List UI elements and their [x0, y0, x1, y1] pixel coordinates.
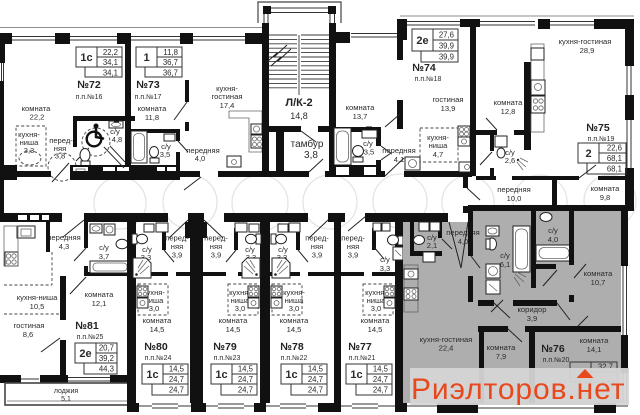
svg-text:4,7: 4,7 — [433, 150, 444, 159]
svg-text:24,7: 24,7 — [373, 386, 388, 395]
svg-text:п.п.№25: п.п.№25 — [77, 334, 104, 341]
svg-text:комната: комната — [580, 336, 609, 345]
svg-text:3,5: 3,5 — [364, 148, 375, 157]
svg-text:комната: комната — [487, 343, 516, 352]
svg-text:68,1: 68,1 — [607, 154, 622, 163]
svg-text:24,7: 24,7 — [373, 375, 388, 384]
svg-text:п.п.№18: п.п.№18 — [415, 76, 442, 83]
svg-text:комната: комната — [494, 98, 523, 107]
svg-text:№73: №73 — [136, 79, 160, 91]
svg-text:лоджия: лоджия — [54, 388, 79, 395]
svg-text:3,0: 3,0 — [371, 304, 382, 313]
svg-text:24,7: 24,7 — [308, 375, 323, 384]
svg-text:4,0: 4,0 — [458, 237, 469, 246]
svg-text:22,4: 22,4 — [439, 344, 454, 353]
svg-text:№76: №76 — [541, 343, 565, 355]
svg-text:39,2: 39,2 — [99, 354, 114, 363]
svg-text:22,2: 22,2 — [103, 48, 118, 57]
svg-text:п.п.№21: п.п.№21 — [349, 355, 376, 362]
svg-text:комната: комната — [584, 269, 613, 278]
svg-text:№81: №81 — [75, 320, 99, 332]
svg-text:гостиная: гостиная — [14, 321, 45, 330]
svg-text:№80: №80 — [144, 341, 168, 353]
svg-text:3,3: 3,3 — [380, 264, 391, 273]
svg-text:комната: комната — [361, 316, 390, 325]
svg-text:Л/К-2: Л/К-2 — [285, 97, 312, 109]
svg-text:44,3: 44,3 — [99, 365, 114, 374]
svg-text:10,0: 10,0 — [507, 194, 522, 203]
svg-text:12,8: 12,8 — [501, 107, 516, 116]
svg-text:1с: 1с — [80, 52, 92, 64]
svg-text:4,0: 4,0 — [195, 154, 206, 163]
svg-text:п.п.№23: п.п.№23 — [214, 355, 241, 362]
svg-text:4,0: 4,0 — [548, 235, 559, 244]
svg-text:14,5: 14,5 — [169, 365, 185, 374]
svg-text:№78: №78 — [280, 341, 304, 353]
svg-text:комната: комната — [143, 316, 172, 325]
svg-text:1: 1 — [143, 52, 149, 64]
svg-text:передняя: передняя — [382, 146, 415, 155]
svg-text:2е: 2е — [416, 35, 428, 47]
svg-text:1с: 1с — [285, 369, 297, 381]
svg-text:комната: комната — [591, 184, 620, 193]
svg-text:тамбур: тамбур — [291, 138, 324, 150]
svg-text:3,3: 3,3 — [24, 146, 35, 155]
svg-text:13,7: 13,7 — [353, 112, 368, 121]
svg-text:3,9: 3,9 — [527, 314, 538, 323]
svg-text:14,1: 14,1 — [587, 345, 602, 354]
svg-text:17,4: 17,4 — [220, 101, 235, 110]
svg-text:14,5: 14,5 — [373, 365, 389, 374]
svg-text:1с: 1с — [215, 369, 227, 381]
svg-text:№79: №79 — [213, 341, 237, 353]
svg-text:7,9: 7,9 — [496, 352, 507, 361]
svg-text:комната: комната — [85, 290, 114, 299]
svg-text:3,9: 3,9 — [348, 251, 359, 260]
svg-text:гостиная: гостиная — [212, 92, 243, 101]
svg-text:3,0: 3,0 — [235, 304, 246, 313]
svg-text:1с: 1с — [350, 369, 362, 381]
svg-text:39,9: 39,9 — [439, 42, 454, 51]
svg-text:27,6: 27,6 — [439, 31, 454, 40]
svg-text:п.п.№20: п.п.№20 — [543, 357, 570, 364]
svg-text:22,6: 22,6 — [607, 144, 622, 153]
svg-text:34,1: 34,1 — [103, 69, 118, 78]
svg-text:Риэлторов.нет: Риэлторов.нет — [411, 373, 625, 406]
svg-text:28,9: 28,9 — [580, 46, 595, 55]
svg-text:с/у: с/у — [99, 243, 109, 252]
svg-text:4,3: 4,3 — [59, 242, 70, 251]
svg-text:№74: №74 — [412, 62, 436, 74]
svg-text:11,8: 11,8 — [145, 113, 159, 122]
svg-text:11,8: 11,8 — [163, 48, 178, 57]
svg-text:п.п.№16: п.п.№16 — [76, 94, 103, 101]
svg-text:24,7: 24,7 — [169, 375, 184, 384]
svg-text:24,7: 24,7 — [169, 386, 184, 395]
svg-text:8,6: 8,6 — [23, 330, 34, 339]
svg-text:22,2: 22,2 — [30, 113, 45, 122]
svg-text:комната: комната — [138, 104, 167, 113]
svg-text:коридор: коридор — [518, 305, 547, 314]
svg-text:14,5: 14,5 — [308, 365, 324, 374]
svg-text:3,9: 3,9 — [172, 251, 183, 260]
svg-text:3,5: 3,5 — [160, 150, 171, 159]
svg-text:3,9: 3,9 — [312, 251, 323, 260]
svg-text:кухня-гостиная: кухня-гостиная — [559, 37, 612, 46]
svg-text:14,8: 14,8 — [290, 111, 308, 121]
svg-text:5,1: 5,1 — [61, 396, 71, 403]
svg-text:с/у: с/у — [380, 255, 390, 264]
svg-text:10,7: 10,7 — [591, 278, 606, 287]
svg-text:4,8: 4,8 — [112, 135, 123, 144]
svg-text:36,7: 36,7 — [163, 69, 178, 78]
svg-text:1с: 1с — [146, 369, 158, 381]
svg-text:3,9: 3,9 — [211, 251, 222, 260]
svg-text:2,1: 2,1 — [427, 241, 438, 250]
svg-text:13,9: 13,9 — [441, 104, 456, 113]
svg-text:3,8: 3,8 — [304, 150, 318, 161]
svg-text:кухня-ниша: кухня-ниша — [17, 293, 58, 302]
svg-text:39,9: 39,9 — [439, 53, 454, 62]
svg-text:комната: комната — [280, 316, 309, 325]
svg-text:передняя: передняя — [47, 233, 80, 242]
svg-text:14,5: 14,5 — [287, 325, 302, 334]
svg-text:12,1: 12,1 — [92, 299, 107, 308]
svg-text:№77: №77 — [348, 341, 372, 353]
svg-text:2е: 2е — [79, 348, 91, 360]
svg-text:14,5: 14,5 — [150, 325, 165, 334]
svg-text:14,5: 14,5 — [238, 365, 254, 374]
svg-text:передняя: передняя — [497, 185, 530, 194]
svg-text:п.п.№22: п.п.№22 — [281, 355, 308, 362]
svg-text:№72: №72 — [77, 79, 101, 91]
svg-text:гостиная: гостиная — [433, 95, 464, 104]
svg-text:2,6: 2,6 — [505, 156, 516, 165]
svg-text:3,0: 3,0 — [149, 304, 160, 313]
svg-text:24,7: 24,7 — [238, 386, 253, 395]
svg-text:2: 2 — [585, 148, 591, 160]
svg-text:68,1: 68,1 — [607, 165, 622, 174]
svg-text:20,7: 20,7 — [99, 344, 114, 353]
svg-text:п.п.№19: п.п.№19 — [588, 136, 615, 143]
svg-text:комната: комната — [219, 316, 248, 325]
svg-text:10,5: 10,5 — [30, 302, 45, 311]
svg-text:п.п.№17: п.п.№17 — [135, 94, 162, 101]
svg-text:9,8: 9,8 — [600, 193, 611, 202]
svg-text:34,1: 34,1 — [103, 58, 118, 67]
svg-text:с/у: с/у — [500, 251, 510, 260]
svg-text:14,5: 14,5 — [368, 325, 383, 334]
svg-text:24,7: 24,7 — [238, 375, 253, 384]
svg-text:14,5: 14,5 — [226, 325, 241, 334]
svg-text:24,7: 24,7 — [308, 386, 323, 395]
svg-text:с/у: с/у — [548, 226, 558, 235]
svg-text:6,1: 6,1 — [500, 260, 511, 269]
svg-text:36,7: 36,7 — [163, 58, 178, 67]
svg-text:п.п.№24: п.п.№24 — [145, 355, 172, 362]
svg-text:№75: №75 — [586, 122, 610, 134]
svg-text:3,0: 3,0 — [289, 304, 300, 313]
svg-text:ниша: ниша — [429, 141, 449, 150]
svg-text:комната: комната — [346, 103, 375, 112]
svg-text:3,7: 3,7 — [99, 252, 110, 261]
